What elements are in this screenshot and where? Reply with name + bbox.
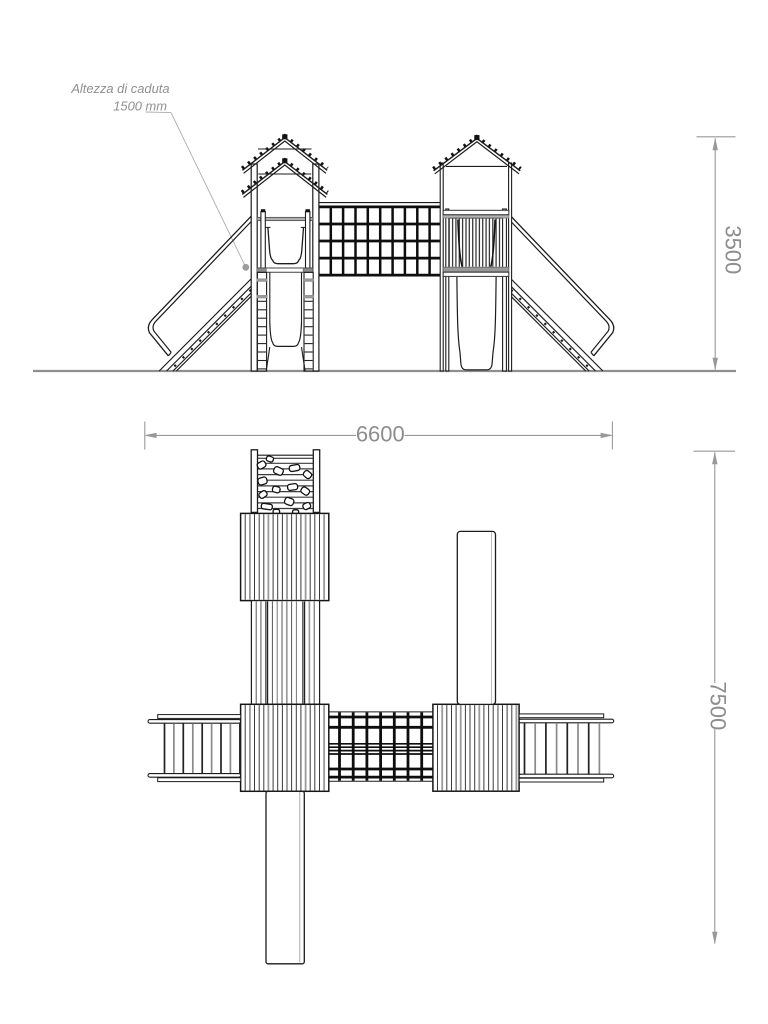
svg-text:7500: 7500 xyxy=(706,681,731,730)
svg-text:3500: 3500 xyxy=(721,225,746,274)
svg-text:1500 mm: 1500 mm xyxy=(113,99,167,114)
svg-text:Altezza di caduta: Altezza di caduta xyxy=(70,81,169,96)
svg-text:6600: 6600 xyxy=(356,421,405,446)
